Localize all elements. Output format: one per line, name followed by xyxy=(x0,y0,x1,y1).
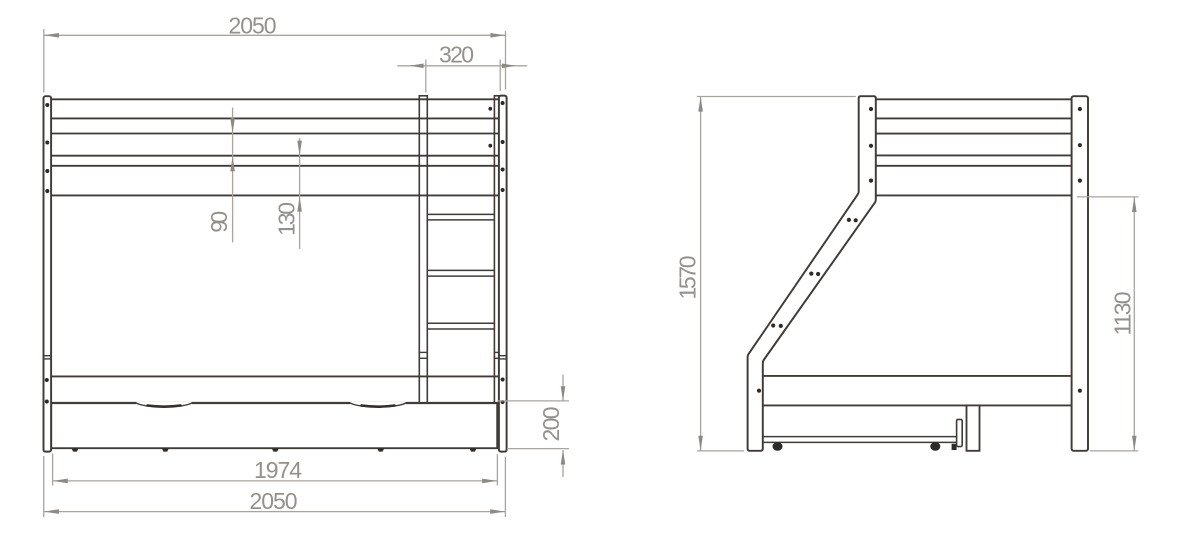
svg-text:1130: 1130 xyxy=(1109,292,1135,336)
svg-text:2050: 2050 xyxy=(229,13,277,39)
svg-text:90: 90 xyxy=(206,211,232,233)
svg-text:320: 320 xyxy=(439,41,474,67)
svg-text:1974: 1974 xyxy=(254,457,302,483)
svg-text:1570: 1570 xyxy=(674,256,700,300)
svg-text:2050: 2050 xyxy=(250,488,298,514)
svg-text:200: 200 xyxy=(538,407,564,442)
svg-text:130: 130 xyxy=(274,202,300,236)
